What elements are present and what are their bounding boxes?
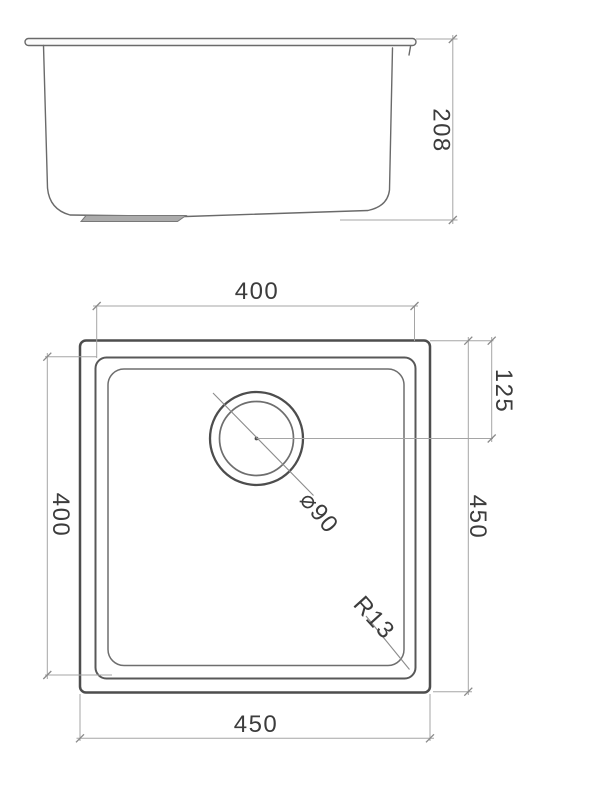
- dimension-side-height: 208: [340, 35, 458, 224]
- dimension-overall-depth: 450: [430, 337, 494, 696]
- dimension-label-drain-diameter: ⌀90: [294, 487, 344, 539]
- dimension-label-drain-offset: 125: [490, 369, 517, 414]
- dimension-label-bowl-width: 400: [235, 278, 280, 305]
- dimension-label-corner-radius: R13: [348, 591, 401, 645]
- sink-technical-drawing: 208 ⌀90 400: [0, 0, 605, 800]
- dimension-drain-offset: 125: [257, 337, 518, 443]
- drawing-page: 208 ⌀90 400: [0, 0, 605, 800]
- dimension-overall-width: 450: [76, 694, 434, 742]
- side-elevation-view: 208: [25, 35, 458, 224]
- drain-diameter-leader: [213, 393, 314, 496]
- bowl-profile-outline: [44, 46, 393, 217]
- dimension-label-bowl-depth: 400: [47, 493, 74, 538]
- rim-lip-line: [409, 47, 411, 56]
- dimension-bowl-width: 400: [93, 278, 419, 358]
- drain-boss: [81, 216, 186, 222]
- dimension-bowl-depth: 400: [43, 353, 112, 679]
- sink-rim-profile: [25, 39, 416, 46]
- plan-view: ⌀90 400 400: [43, 278, 517, 742]
- dimension-corner-radius: R13: [348, 591, 410, 670]
- dimension-label-side-height: 208: [428, 108, 455, 153]
- dimension-label-overall-depth: 450: [464, 495, 491, 540]
- dimension-label-overall-width: 450: [234, 711, 279, 738]
